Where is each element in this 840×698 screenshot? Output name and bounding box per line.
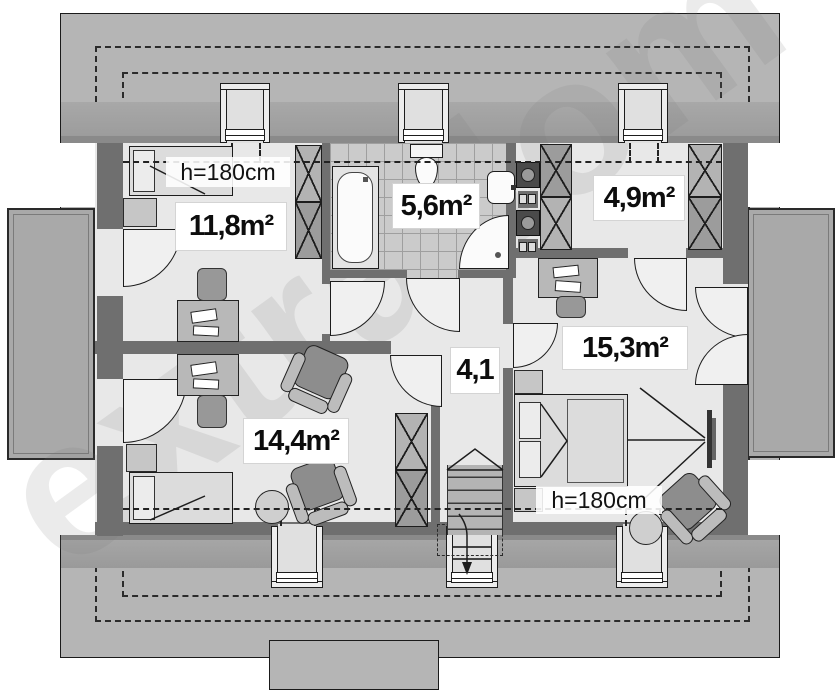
dormer-window [225, 129, 265, 141]
side-table [255, 490, 289, 524]
terrace-left [7, 208, 95, 460]
wall-segment [330, 270, 407, 278]
wardrobe-cell [688, 197, 722, 250]
side-table [629, 511, 663, 545]
office-chair [197, 268, 227, 301]
nightstand [123, 198, 157, 227]
laundry-cabinet [518, 239, 538, 256]
wall-segment [503, 278, 513, 324]
stairs [447, 465, 503, 535]
wall-segment [97, 296, 123, 379]
office-chair [197, 395, 227, 428]
laundry-cabinet [518, 191, 538, 208]
wall-segment [723, 143, 748, 284]
tub-drain-icon [363, 177, 368, 182]
terrace-right [747, 208, 835, 458]
dormer-window [403, 129, 444, 141]
wall-segment [431, 398, 440, 535]
dormer-window [276, 572, 318, 583]
floor-plan: extradom [0, 0, 840, 698]
wardrobe-cell [395, 413, 428, 470]
wall-segment [95, 341, 391, 354]
area-label: 4,1 [450, 347, 500, 394]
blanket [567, 399, 624, 483]
nightstand [126, 444, 157, 472]
bathtub [332, 166, 379, 269]
area-label: 15,3m² [562, 326, 688, 370]
washer-drum-icon [521, 168, 535, 182]
area-label: 14,4m² [243, 418, 349, 464]
dormer-window [621, 572, 663, 583]
wardrobe-cell [295, 202, 322, 259]
pillow [133, 150, 155, 192]
nightstand [514, 370, 543, 394]
desk [177, 354, 239, 396]
office-chair [556, 296, 586, 318]
desk [538, 258, 598, 298]
wall-segment [97, 143, 123, 229]
wall-segment [458, 270, 508, 278]
eave-band-bottom-edge [61, 535, 779, 540]
washing-machine [516, 162, 540, 188]
wardrobe-cell [395, 470, 428, 527]
washbasin-tap-icon [511, 185, 516, 190]
dryer-drum-icon [521, 216, 535, 230]
tv-bracket [712, 418, 716, 460]
wardrobe-cell [540, 197, 572, 250]
desk [177, 300, 239, 342]
height-note: h=180cm [166, 157, 290, 187]
area-label: 5,6m² [392, 183, 480, 229]
pillow [519, 441, 541, 478]
shower-drain-icon [495, 252, 501, 258]
wardrobe-cell [540, 144, 572, 197]
pillow [133, 476, 155, 520]
area-label: 4,9m² [593, 175, 685, 221]
side-cover [748, 460, 840, 535]
toilet [410, 144, 443, 158]
wardrobe-cell [295, 145, 322, 202]
roof-seam-patch [271, 642, 437, 659]
area-label: 11,8m² [175, 202, 287, 251]
dormer-window [623, 129, 663, 141]
wall-segment [322, 143, 330, 284]
side-cover [0, 460, 97, 535]
side-cover [748, 143, 840, 207]
pillow [519, 402, 541, 439]
wardrobe-cell [688, 144, 722, 197]
dryer [516, 210, 540, 236]
height-note: h=180cm [536, 486, 662, 514]
dormer-window [451, 572, 493, 583]
side-cover [0, 143, 97, 207]
